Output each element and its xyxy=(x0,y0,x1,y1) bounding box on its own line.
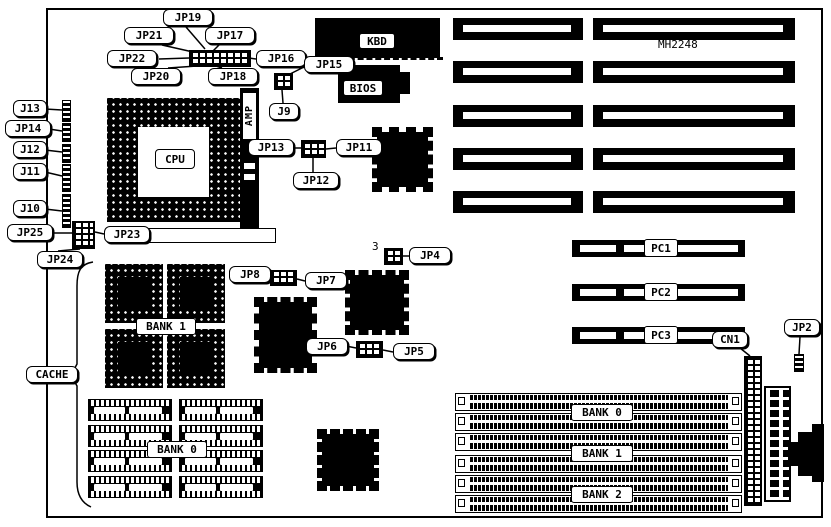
label-text: PC1 xyxy=(651,242,671,255)
simm-bank2-label: BANK 2 xyxy=(571,486,633,503)
callout-jp15: JP15 xyxy=(304,56,354,73)
label-text: J13 xyxy=(20,102,40,115)
cpu-label: CPU xyxy=(155,149,195,169)
label-text: JP12 xyxy=(303,174,330,187)
leader-line-j13 xyxy=(45,109,62,110)
leader-line-jp16 xyxy=(249,58,256,59)
callout-jp19: JP19 xyxy=(163,9,213,26)
callout-jp18: JP18 xyxy=(208,68,258,85)
callout-jp17: JP17 xyxy=(205,27,255,44)
label-text: CPU xyxy=(165,153,185,166)
label-text: JP22 xyxy=(119,52,146,65)
cache-bank1-label: BANK 1 xyxy=(136,318,196,335)
callout-jp8: JP8 xyxy=(229,266,271,283)
pci-slot-pc2-label: PC2 xyxy=(644,283,678,301)
label-text: JP6 xyxy=(317,340,337,353)
label-text: JP11 xyxy=(346,141,373,154)
simm-bank0-label: BANK 0 xyxy=(571,404,633,421)
label-text: JP17 xyxy=(217,29,244,42)
callout-jp22: JP22 xyxy=(107,50,157,67)
leader-line-jp17 xyxy=(212,45,219,52)
callout-jp14: JP14 xyxy=(5,120,51,137)
label-text: BANK 1 xyxy=(582,447,622,460)
callout-jp16: JP16 xyxy=(256,50,306,67)
label-text: JP21 xyxy=(136,29,163,42)
callout-jp7: JP7 xyxy=(305,272,347,289)
label-text: PC2 xyxy=(651,286,671,299)
label-text: JP24 xyxy=(47,253,74,266)
label-text: J11 xyxy=(20,165,40,178)
cache-brace xyxy=(71,262,93,507)
callout-j12: J12 xyxy=(13,141,47,158)
label-text: JP16 xyxy=(268,52,295,65)
motherboard-diagram: MH2248PC1PC2PC3CPUAMPKBDBIOS3BANK 1BANK … xyxy=(0,0,831,527)
leader-line-jp22 xyxy=(159,58,189,59)
label-text: J12 xyxy=(20,143,40,156)
leader-line-jp7 xyxy=(297,279,305,281)
label-text: JP4 xyxy=(420,249,440,262)
leader-line-jp23 xyxy=(95,232,104,234)
label-text: BANK 0 xyxy=(582,406,622,419)
label-text: JP5 xyxy=(404,345,424,358)
label-text: BANK 0 xyxy=(157,443,197,456)
bios-label: BIOS xyxy=(343,80,383,96)
callout-j11: J11 xyxy=(13,163,47,180)
label-text: CACHE xyxy=(35,368,68,381)
callout-jp12: JP12 xyxy=(293,172,339,189)
label-text: JP14 xyxy=(15,122,42,135)
label-text: JP19 xyxy=(175,11,202,24)
label-text: JP8 xyxy=(240,268,260,281)
leader-line-cn1 xyxy=(740,348,750,356)
leader-line-jp21 xyxy=(162,45,193,52)
label-text: JP20 xyxy=(143,70,170,83)
label-text: JP13 xyxy=(258,141,285,154)
kbd-label: KBD xyxy=(359,33,395,49)
callout-j10: J10 xyxy=(13,200,47,217)
label-text: JP7 xyxy=(316,274,336,287)
label-text: J10 xyxy=(20,202,40,215)
pci-slot-pc3-label: PC3 xyxy=(644,326,678,344)
leader-line-jp2 xyxy=(799,337,800,354)
callout-jp13: JP13 xyxy=(248,139,294,156)
leader-line-jp15 xyxy=(288,67,304,75)
callout-j13: J13 xyxy=(13,100,47,117)
label-text: CN1 xyxy=(720,333,740,346)
callout-j9: J9 xyxy=(269,103,299,120)
label-text: JP18 xyxy=(220,70,247,83)
simm-bank1-label: BANK 1 xyxy=(571,445,633,462)
callout-jp6: JP6 xyxy=(306,338,348,355)
label-text: J9 xyxy=(277,105,290,118)
cache-bank0-label: BANK 0 xyxy=(147,441,207,458)
label-text: JP2 xyxy=(792,321,812,334)
callout-cn1: CN1 xyxy=(712,331,748,348)
label-text: BIOS xyxy=(350,82,377,95)
pci-slot-pc1-label: PC1 xyxy=(644,239,678,257)
leader-line-j11 xyxy=(45,172,62,176)
callout-cache: CACHE xyxy=(26,366,78,383)
callout-jp11: JP11 xyxy=(336,139,382,156)
callout-jp21: JP21 xyxy=(124,27,174,44)
callout-jp25: JP25 xyxy=(7,224,53,241)
leader-line-j12 xyxy=(45,150,62,152)
label-text: KBD xyxy=(367,35,387,48)
callout-jp5: JP5 xyxy=(393,343,435,360)
leader-line-j10 xyxy=(45,209,62,211)
callout-jp20: JP20 xyxy=(131,68,181,85)
label-text: BANK 2 xyxy=(582,488,622,501)
callout-jp4: JP4 xyxy=(409,247,451,264)
callout-jp23: JP23 xyxy=(104,226,150,243)
label-text: BANK 1 xyxy=(146,320,186,333)
callout-jp24: JP24 xyxy=(37,251,83,268)
leader-line-jp19 xyxy=(186,27,205,49)
leader-line-jp5 xyxy=(383,350,393,352)
label-text: JP25 xyxy=(17,226,44,239)
label-text: JP23 xyxy=(114,228,141,241)
leader-line-j9 xyxy=(282,90,283,103)
label-text: JP15 xyxy=(316,58,343,71)
callout-jp2: JP2 xyxy=(784,319,820,336)
leader-line-jp11 xyxy=(326,148,336,149)
label-text: PC3 xyxy=(651,329,671,342)
